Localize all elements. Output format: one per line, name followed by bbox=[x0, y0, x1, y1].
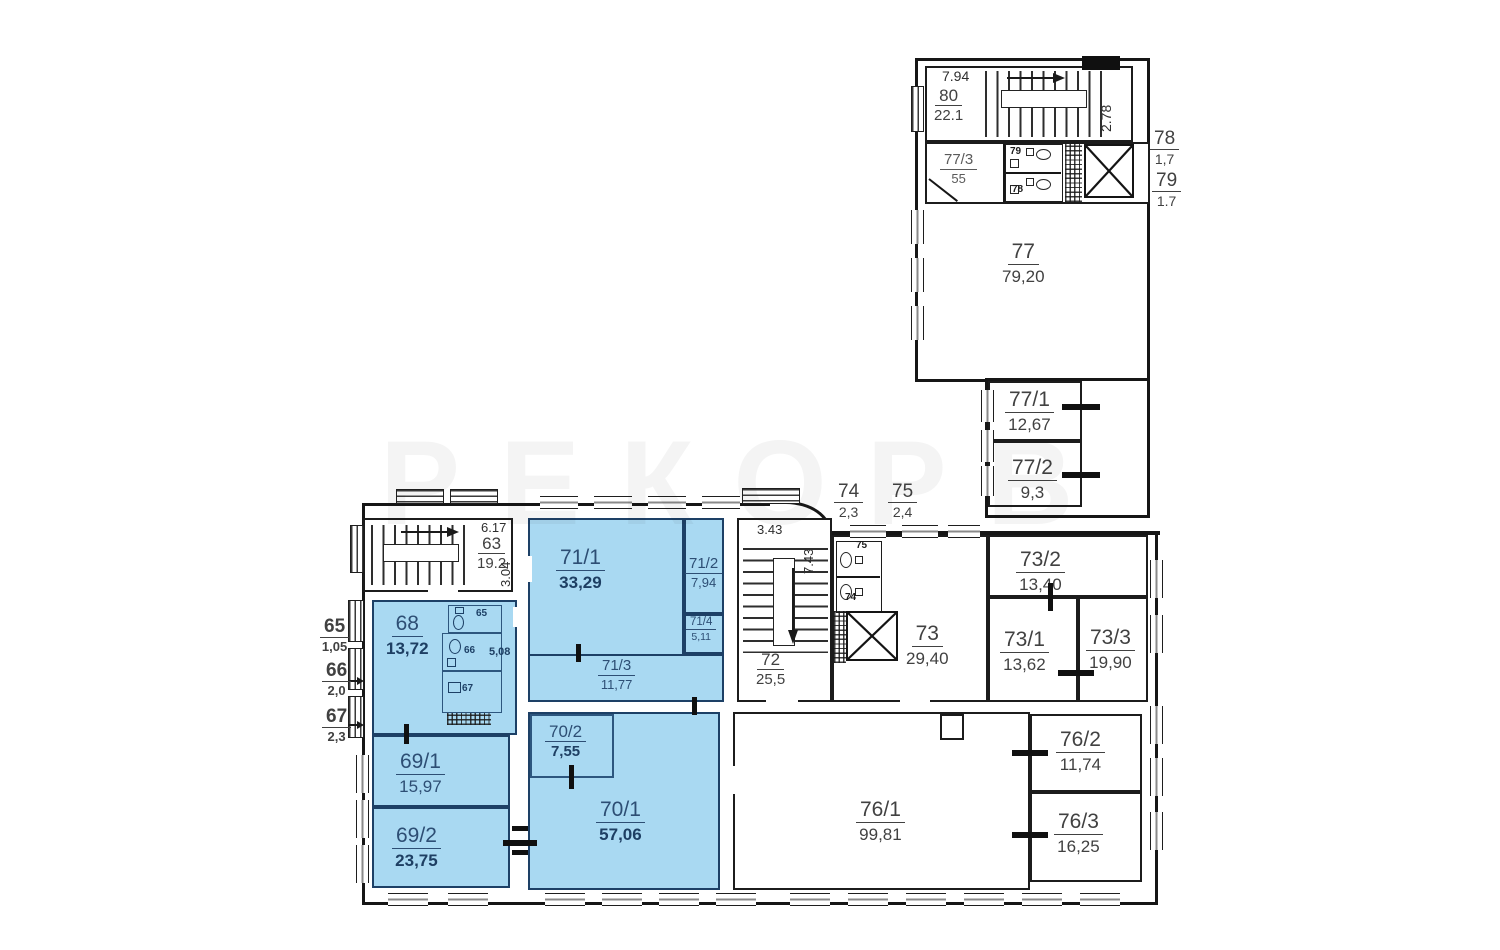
window bbox=[981, 390, 994, 422]
door-dash bbox=[404, 724, 409, 744]
room-area: 2,3 bbox=[839, 503, 858, 521]
room-area: 5,11 bbox=[691, 630, 711, 644]
wc-number: 67 bbox=[462, 683, 473, 694]
cistern-icon bbox=[1026, 148, 1034, 156]
room-area: 19,90 bbox=[1089, 651, 1132, 672]
room-number: 74 bbox=[834, 481, 863, 503]
room-number: 72 bbox=[757, 650, 784, 670]
room-label-77-2: 77/2 9,3 bbox=[1008, 456, 1057, 502]
room-number: 73/3 bbox=[1086, 626, 1135, 651]
room-label-68: 68 13,72 bbox=[386, 612, 429, 658]
room-area: 1,05 bbox=[322, 638, 347, 655]
room-number: 77/2 bbox=[1008, 456, 1057, 481]
door-dash bbox=[1058, 670, 1094, 676]
door-dash bbox=[1012, 832, 1048, 838]
room-number: 73 bbox=[912, 622, 943, 647]
room-number: 71/2 bbox=[685, 556, 722, 574]
room-label-71-4: 71/4 5,11 bbox=[686, 616, 716, 644]
door-gap bbox=[525, 556, 532, 582]
door-dash bbox=[503, 840, 537, 846]
room-number: 77/3 bbox=[940, 152, 977, 170]
room-number: 69/2 bbox=[392, 824, 441, 849]
room-area: 57,06 bbox=[599, 823, 642, 844]
window bbox=[648, 496, 686, 509]
outside-label-74: 74 2,3 bbox=[834, 481, 863, 521]
dimension: 6.17 bbox=[481, 520, 506, 535]
room-number: 78 bbox=[1150, 128, 1179, 150]
vent-grill bbox=[348, 600, 364, 642]
room-area: 29,40 bbox=[906, 647, 949, 668]
room-label-71-3: 71/3 11,77 bbox=[598, 658, 635, 692]
room-area: 11,74 bbox=[1060, 753, 1101, 774]
window bbox=[1150, 615, 1163, 653]
cistern-icon bbox=[455, 607, 464, 614]
elevator bbox=[1084, 144, 1134, 198]
room-area: 23,75 bbox=[395, 849, 438, 870]
window bbox=[716, 893, 756, 906]
window bbox=[356, 755, 369, 793]
room-73 bbox=[832, 535, 988, 702]
sink-icon bbox=[1010, 159, 1019, 168]
room-number: 70/1 bbox=[596, 798, 645, 823]
sink-icon bbox=[855, 588, 863, 596]
stairs-landing bbox=[383, 544, 459, 562]
room-number: 66 bbox=[322, 660, 351, 682]
room-area: 2,3 bbox=[328, 728, 346, 745]
room-number: 68 bbox=[392, 612, 423, 637]
window bbox=[981, 466, 994, 496]
outside-label-65: 65 1,05 bbox=[320, 616, 349, 655]
window bbox=[906, 893, 946, 906]
stair-direction-arrow bbox=[787, 568, 799, 646]
room-area: 25,5 bbox=[756, 670, 785, 689]
door-gap bbox=[513, 607, 520, 627]
wc-number: 65 bbox=[476, 608, 487, 619]
room-label-73-2: 73/2 13,40 bbox=[1016, 548, 1065, 594]
window bbox=[356, 800, 369, 838]
room-area: 1.7 bbox=[1157, 192, 1176, 210]
stairs-landing bbox=[1001, 90, 1087, 108]
room-label-76-1: 76/1 99,81 bbox=[856, 798, 905, 844]
room-area: 12,67 bbox=[1008, 413, 1051, 434]
room-label-73: 73 29,40 bbox=[906, 622, 949, 668]
door-dash bbox=[692, 697, 697, 715]
room-area: 13,40 bbox=[1019, 573, 1062, 594]
wall-stub bbox=[512, 826, 528, 831]
room-label-71-1: 71/1 33,29 bbox=[556, 546, 605, 592]
window bbox=[388, 893, 428, 906]
room-area: 22.1 bbox=[934, 106, 963, 125]
window bbox=[702, 496, 740, 509]
toilet-icon bbox=[1036, 149, 1051, 160]
wc-number: 79 bbox=[1010, 146, 1021, 157]
stair-direction-arrow bbox=[1007, 72, 1065, 84]
door-gap bbox=[766, 698, 798, 705]
room-area: 33,29 bbox=[559, 571, 602, 592]
room-label-69-1: 69/1 15,97 bbox=[396, 750, 445, 796]
window bbox=[1150, 812, 1163, 850]
floor-grate bbox=[447, 713, 491, 725]
window bbox=[790, 893, 830, 906]
outside-label-66: 66 2,0 bbox=[322, 660, 351, 699]
room-label-77-1: 77/1 12,67 bbox=[1005, 388, 1054, 434]
room-label-70-2: 70/2 7,55 bbox=[545, 722, 586, 761]
toilet-icon bbox=[449, 639, 461, 654]
room-number: 67 bbox=[322, 706, 351, 728]
vent-grill bbox=[450, 489, 498, 504]
room-number: 76/3 bbox=[1054, 810, 1103, 835]
room-number: 77/1 bbox=[1005, 388, 1054, 413]
room-area: 13,62 bbox=[1003, 653, 1046, 674]
dimension: 3.43 bbox=[757, 522, 782, 537]
door-dash bbox=[1062, 404, 1100, 410]
wc-number: 74 bbox=[845, 592, 856, 603]
room-number: 75 bbox=[888, 481, 917, 503]
room-label-73-3: 73/3 19,90 bbox=[1086, 626, 1135, 672]
room-number: 76/2 bbox=[1056, 728, 1105, 753]
window bbox=[911, 210, 924, 244]
window bbox=[540, 496, 578, 509]
room-number: 71/3 bbox=[598, 658, 635, 676]
room-number: 65 bbox=[320, 616, 349, 638]
floor-plan: 80 22.1 7.94 2.78 77/3 55 79 78 77 79,20… bbox=[0, 0, 1500, 950]
dimension: 5,08 bbox=[489, 646, 510, 658]
room-area: 7,94 bbox=[691, 574, 716, 591]
outside-label-75: 75 2,4 bbox=[888, 481, 917, 521]
room-label-70-1: 70/1 57,06 bbox=[596, 798, 645, 844]
window bbox=[545, 893, 585, 906]
dimension: 3.04 bbox=[498, 551, 513, 587]
window bbox=[964, 893, 1004, 906]
room-number: 71/1 bbox=[556, 546, 605, 571]
window bbox=[850, 525, 886, 538]
window bbox=[902, 525, 938, 538]
dimension: 7.94 bbox=[942, 68, 969, 84]
wall-stub bbox=[512, 850, 528, 855]
room-label-80: 80 22.1 bbox=[934, 86, 963, 125]
room-number: 80 bbox=[935, 86, 962, 106]
wc-number: 66 bbox=[464, 645, 475, 656]
room-number: 70/2 bbox=[545, 722, 586, 742]
window bbox=[659, 893, 699, 906]
wc-divider bbox=[837, 576, 880, 578]
window bbox=[948, 525, 980, 538]
room-number: 77 bbox=[1008, 240, 1039, 265]
window bbox=[448, 893, 488, 906]
window bbox=[1022, 893, 1062, 906]
outside-label-78: 78 1,7 bbox=[1150, 128, 1179, 168]
wc-number: 78 bbox=[1012, 184, 1023, 195]
window bbox=[848, 893, 888, 906]
room-area: 16,25 bbox=[1057, 835, 1100, 856]
shaft-hatch bbox=[1065, 144, 1082, 202]
window bbox=[602, 893, 642, 906]
room-area: 55 bbox=[951, 170, 965, 187]
room-number: 69/1 bbox=[396, 750, 445, 775]
room-label-77-3: 77/3 55 bbox=[940, 152, 977, 186]
room-area: 2,4 bbox=[893, 503, 912, 521]
room-label-72: 72 25,5 bbox=[756, 650, 785, 689]
room-area: 7,55 bbox=[551, 742, 580, 761]
cistern-icon bbox=[1026, 178, 1034, 186]
door-dash bbox=[1062, 472, 1100, 478]
room-number: 79 bbox=[1152, 170, 1181, 192]
door-gap bbox=[729, 766, 736, 794]
door-gap bbox=[428, 587, 458, 594]
wc-number: 75 bbox=[856, 540, 867, 551]
window bbox=[1080, 893, 1120, 906]
vent-grill bbox=[911, 86, 924, 132]
window bbox=[1150, 706, 1163, 744]
room-label-76-3: 76/3 16,25 bbox=[1054, 810, 1103, 856]
room-area: 11,77 bbox=[601, 676, 633, 693]
room-area: 15,97 bbox=[399, 775, 442, 796]
toilet-icon bbox=[1036, 179, 1051, 190]
wc-room-65 bbox=[448, 605, 502, 633]
door-dash bbox=[576, 644, 581, 662]
room-area: 13,72 bbox=[386, 637, 429, 658]
outside-label-79: 79 1.7 bbox=[1152, 170, 1181, 210]
roof-vent-block bbox=[1082, 56, 1120, 70]
vent-grill bbox=[742, 488, 800, 504]
door-dash bbox=[1012, 750, 1048, 756]
room-label-76-2: 76/2 11,74 bbox=[1056, 728, 1105, 774]
room-area: 9,3 bbox=[1021, 481, 1045, 502]
dimension: 7.43 bbox=[801, 528, 816, 574]
room-number: 71/4 bbox=[686, 616, 716, 630]
window bbox=[594, 496, 632, 509]
vent-grill bbox=[396, 489, 444, 504]
door-dash bbox=[569, 765, 574, 789]
shaft-hatch bbox=[834, 611, 846, 663]
window bbox=[1150, 758, 1163, 796]
room-label-73-1: 73/1 13,62 bbox=[1000, 628, 1049, 674]
room-number: 73/2 bbox=[1016, 548, 1065, 573]
room-label-77: 77 79,20 bbox=[1002, 240, 1045, 286]
room-area: 1,7 bbox=[1155, 150, 1174, 168]
pillar bbox=[940, 714, 964, 740]
room-area: 99,81 bbox=[859, 823, 902, 844]
door-gap bbox=[900, 698, 930, 705]
room-label-69-2: 69/2 23,75 bbox=[392, 824, 441, 870]
room-area: 79,20 bbox=[1002, 265, 1045, 286]
sink-icon bbox=[448, 682, 461, 693]
window bbox=[1150, 560, 1163, 598]
window bbox=[911, 306, 924, 340]
room-label-71-2: 71/2 7,94 bbox=[685, 556, 722, 590]
room-71-1 bbox=[528, 518, 684, 657]
room-area: 2,0 bbox=[328, 682, 346, 699]
room-number: 76/1 bbox=[856, 798, 905, 823]
partition-wall bbox=[1003, 144, 1005, 202]
toilet-icon bbox=[453, 615, 464, 630]
dimension: 2.78 bbox=[1098, 76, 1114, 132]
sink-icon bbox=[447, 658, 456, 667]
wc-block-74-75 bbox=[836, 541, 882, 613]
window bbox=[981, 430, 994, 462]
door-dash bbox=[1048, 583, 1053, 611]
toilet-icon bbox=[840, 552, 852, 568]
window bbox=[356, 845, 369, 883]
room-73-2 bbox=[988, 535, 1148, 597]
window bbox=[911, 258, 924, 292]
wc-divider bbox=[1006, 172, 1061, 174]
sink-icon bbox=[855, 556, 863, 564]
stair-direction-arrow bbox=[401, 526, 459, 538]
room-number: 73/1 bbox=[1000, 628, 1049, 653]
elevator bbox=[846, 611, 898, 661]
outside-label-67: 67 2,3 bbox=[322, 706, 351, 745]
